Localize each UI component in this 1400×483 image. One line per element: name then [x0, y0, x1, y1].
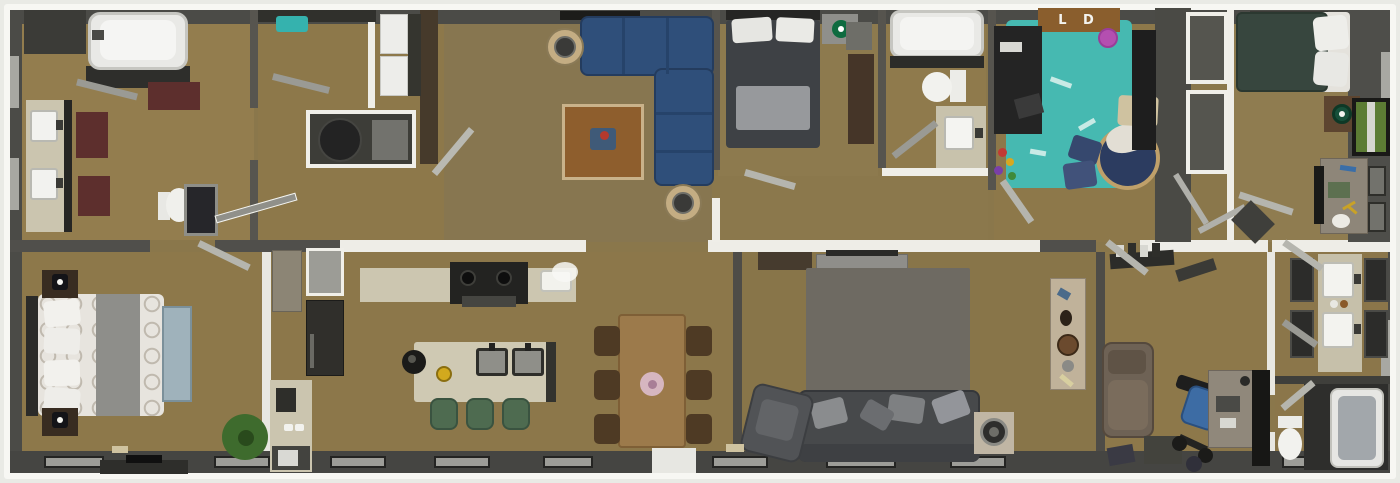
closet-2-hanging-rod [1190, 94, 1224, 170]
office-bookcase [1252, 370, 1270, 466]
masterbath-rug-3 [78, 176, 110, 216]
family-tv [826, 250, 898, 256]
porch-landing [652, 448, 696, 473]
decor-item-4 [1062, 360, 1074, 372]
fruit-bowl [436, 366, 452, 382]
master-bench [162, 306, 192, 402]
entry-door-frame [420, 10, 438, 164]
bedroom2-pillow-2 [775, 17, 814, 43]
desk-laptop [1216, 396, 1240, 412]
sectional-seam-2 [666, 18, 669, 74]
sectional-sofa-chaise [654, 68, 714, 186]
master-vanity-sink-2 [30, 168, 58, 200]
window-bottom-4 [434, 456, 490, 468]
pantry-shelves [272, 250, 302, 312]
kettlebell [1186, 456, 1202, 472]
master-vanity-sink-1 [30, 110, 58, 142]
master-pillow-1 [43, 298, 82, 328]
mini-appliance-door [278, 450, 298, 466]
master-vanity-cabinet-edge [64, 100, 72, 232]
media-cabinet-left [758, 252, 812, 270]
island-end-dark [546, 342, 556, 402]
desk-notepad [1328, 182, 1350, 198]
master-vanity-faucet-1 [56, 120, 63, 130]
island-sink-2 [512, 348, 544, 376]
kids-bookcase [1132, 30, 1156, 150]
toy-1 [998, 148, 1007, 157]
dining-chair-right-1 [686, 326, 712, 356]
kids-desk-items [1000, 42, 1022, 52]
shelf-bottle-3 [1140, 245, 1148, 257]
nightstand-plant-dot [1339, 111, 1345, 117]
bath2-sink [944, 116, 974, 150]
master-shower [184, 184, 218, 236]
laundry-basket-teal [276, 16, 308, 32]
bath2-toilet-tank [950, 70, 966, 102]
closet-1-hanging-rod [1190, 16, 1224, 80]
wall-hall-stub [712, 198, 720, 242]
refrigerator-handle [310, 334, 314, 368]
island-faucet-1 [489, 343, 495, 351]
bedroom2-blanket [736, 86, 810, 130]
washer [380, 14, 408, 54]
moss-art-stripe [1367, 102, 1375, 152]
toy-4 [1008, 172, 1016, 180]
island-faucet-2 [525, 343, 531, 351]
island-sink-1 [476, 348, 508, 376]
bedroom2-lamp-dot [838, 26, 844, 32]
bath2-tub-inner [900, 17, 974, 50]
bath3-toilet-tank [1278, 416, 1302, 428]
floor-plan-render: L D [0, 0, 1400, 483]
bath2-faucet [975, 128, 983, 138]
kids-pillow-2 [1062, 160, 1097, 190]
family-outlet [726, 444, 744, 452]
masterbath-cabinet [24, 10, 86, 54]
bath3-soap [1330, 300, 1338, 308]
bath3-divider-wall [1275, 376, 1390, 384]
master-tv [126, 455, 162, 463]
master-throw-blanket [96, 294, 140, 416]
lounge-chair-seat [1108, 380, 1148, 430]
window-bottom-5 [543, 456, 593, 468]
bath2-toilet-bowl [922, 72, 952, 102]
bath3-tub-water [1338, 396, 1376, 460]
sectional-seam-1 [622, 18, 625, 74]
sectional-sofa-main [580, 16, 714, 76]
dining-chair-right-2 [686, 370, 712, 400]
bath3-faucet-1 [1354, 274, 1361, 284]
midwall-dark-3 [1040, 240, 1096, 252]
bedroom1-pillow-1 [1312, 14, 1349, 51]
wall-dining-family [733, 252, 742, 457]
wall-switch-2 [1368, 202, 1386, 232]
sectional-seam-4 [656, 150, 712, 153]
table-fan-2 [672, 192, 694, 214]
water-heater-tank [318, 118, 362, 162]
toy-3 [994, 166, 1003, 175]
decor-item-3 [1057, 334, 1079, 356]
masterbath-rug-1 [148, 82, 200, 110]
window-left-2 [10, 158, 19, 210]
purple-ball-toy [1098, 28, 1118, 48]
master-lamp-dot-2 [57, 417, 63, 423]
table-fan-1 [554, 36, 576, 58]
bath3-mirror-right-1 [1364, 258, 1388, 302]
sofa-pillow-2 [886, 394, 925, 425]
fan-center [989, 427, 999, 437]
rug-table-decor [600, 131, 609, 140]
master-outlet [112, 446, 128, 453]
oven-front [462, 296, 516, 307]
shelf-bottle-4 [1152, 243, 1160, 257]
master-vanity-faucet-2 [56, 178, 63, 188]
hallway-floor [712, 176, 988, 242]
lounge-chair-pillow [1108, 350, 1146, 374]
wall-closet-bedroom1 [1227, 10, 1234, 242]
master-headboard [26, 296, 38, 416]
bedroom1-desk-chair [1314, 166, 1324, 224]
sectional-seam-3 [656, 112, 712, 115]
master-plant-center [238, 430, 254, 446]
bath3-sink-2 [1322, 312, 1354, 348]
wall-bedroom2-bath2 [878, 10, 886, 168]
burner-2 [496, 270, 512, 286]
master-tub-inner [100, 20, 176, 60]
burner-1 [460, 270, 476, 286]
bar-stool-2 [466, 398, 494, 430]
midwall-white-1 [340, 240, 586, 252]
wall-bath2-bottom [882, 168, 988, 176]
coffee-cup-1 [284, 424, 293, 431]
glass-cabinet [306, 248, 344, 296]
wall-masterbath-b [250, 160, 258, 240]
dining-chair-right-3 [686, 414, 712, 444]
dining-chair-left-1 [594, 326, 620, 356]
laundry-controls [408, 14, 421, 96]
master-pillow-3 [44, 359, 81, 386]
stock-pot-highlight [408, 355, 416, 363]
bar-stool-1 [430, 398, 458, 430]
centerpiece-center [648, 380, 657, 389]
family-sofa-back [798, 444, 980, 462]
bar-stool-3 [502, 398, 530, 430]
bedroom1-pillow-2 [1313, 51, 1350, 88]
dining-chair-left-3 [594, 414, 620, 444]
desk-lamp [1240, 376, 1250, 386]
desk-bowl [1332, 214, 1350, 228]
master-pillow-2 [43, 327, 80, 355]
bedroom2-rug [846, 22, 872, 50]
coffee-cup-2 [295, 424, 304, 431]
water-heater-shelf [372, 120, 408, 160]
dryer [380, 56, 408, 96]
toy-2 [1006, 158, 1014, 166]
family-rug [806, 268, 970, 406]
bath3-mirror-right-2 [1364, 310, 1388, 358]
dining-ceiling-light [552, 262, 578, 282]
bedroom2-dresser [848, 54, 874, 144]
window-bottom-1 [44, 456, 104, 468]
bath3-candle [1340, 300, 1348, 308]
midwall-dark-1 [10, 240, 150, 252]
masterbath-rug-2 [76, 112, 108, 158]
coffee-maker [276, 388, 296, 412]
laundry-partition-wall [368, 10, 375, 108]
master-lamp-dot-1 [57, 279, 63, 285]
decor-item-2 [1060, 310, 1072, 326]
dining-chair-left-2 [594, 370, 620, 400]
bath3-sink-1 [1322, 262, 1354, 298]
bedroom2-pillow-1 [731, 17, 773, 44]
wall-masterbath-a [250, 10, 258, 108]
master-tub-faucet [92, 30, 104, 40]
bath3-toilet-bowl [1278, 428, 1302, 460]
dumbbell-plate-1 [1172, 436, 1187, 451]
wall-switch-1 [1368, 166, 1386, 196]
window-bottom-3 [330, 456, 386, 468]
window-left-1 [10, 56, 19, 108]
bath2-tub-strip [890, 56, 984, 68]
bath3-faucet-2 [1354, 324, 1361, 334]
desk-paper [1220, 418, 1236, 428]
window-bottom-6 [712, 456, 768, 468]
